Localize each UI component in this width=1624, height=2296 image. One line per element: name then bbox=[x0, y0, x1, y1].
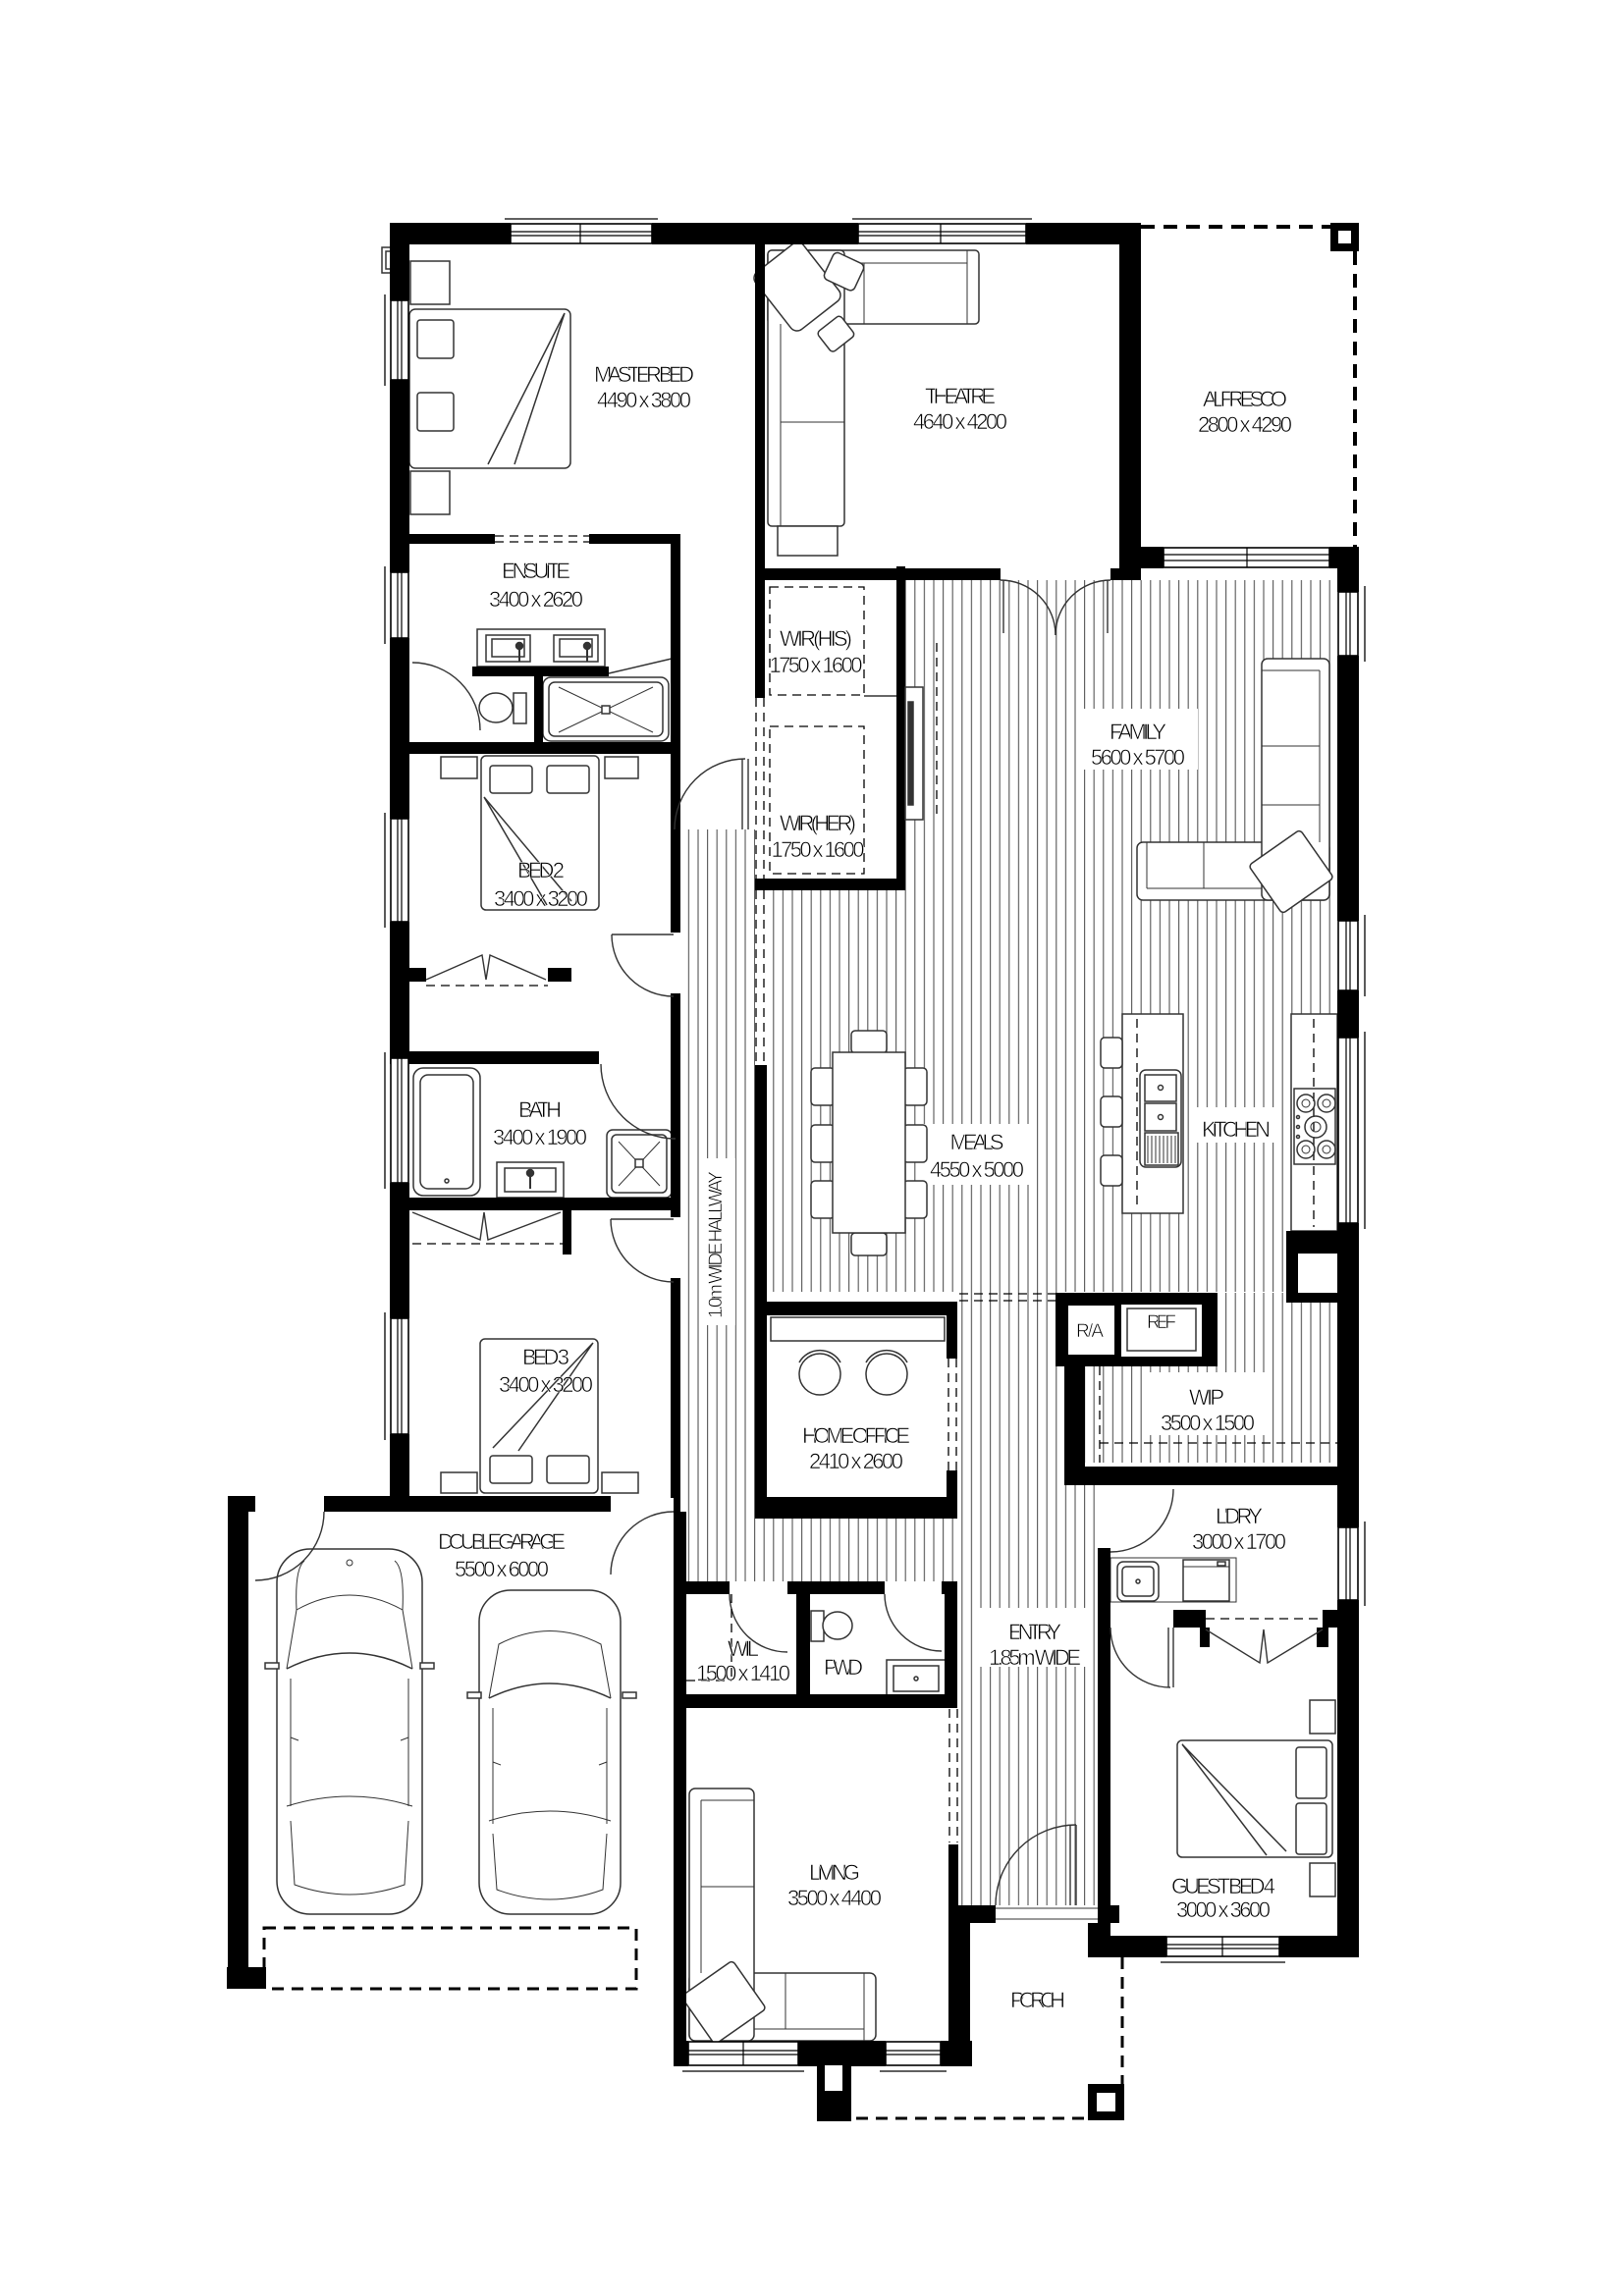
svg-text:BED 2: BED 2 bbox=[517, 858, 565, 882]
svg-text:PWD: PWD bbox=[824, 1655, 863, 1680]
svg-text:1500 x 1410: 1500 x 1410 bbox=[696, 1661, 790, 1685]
svg-text:2800 x 4290: 2800 x 4290 bbox=[1198, 412, 1292, 437]
svg-text:1750 x 1600: 1750 x 1600 bbox=[772, 837, 865, 862]
svg-text:REF: REF bbox=[1147, 1312, 1176, 1333]
svg-text:FAMILY: FAMILY bbox=[1110, 720, 1166, 744]
svg-text:3400 x 2620: 3400 x 2620 bbox=[489, 587, 583, 612]
svg-text:3500 x 1500: 3500 x 1500 bbox=[1161, 1411, 1255, 1435]
svg-text:HOME OFFICE: HOME OFFICE bbox=[802, 1423, 910, 1448]
svg-text:BATH: BATH bbox=[518, 1097, 562, 1122]
svg-text:GUEST BED 4: GUEST BED 4 bbox=[1171, 1874, 1275, 1898]
svg-text:L'DRY: L'DRY bbox=[1216, 1504, 1263, 1528]
svg-text:WIP: WIP bbox=[1189, 1385, 1224, 1410]
svg-text:4490 x 3800: 4490 x 3800 bbox=[597, 388, 691, 412]
svg-text:5600 x 5700: 5600 x 5700 bbox=[1091, 745, 1185, 770]
svg-text:WIR(HER): WIR(HER) bbox=[780, 811, 856, 835]
svg-text:3000 x 1700: 3000 x 1700 bbox=[1192, 1529, 1286, 1554]
svg-text:LIVING: LIVING bbox=[809, 1860, 860, 1885]
svg-text:1.0m WIDE HALLWAY: 1.0m WIDE HALLWAY bbox=[706, 1171, 727, 1318]
svg-text:MASTER BED: MASTER BED bbox=[594, 362, 694, 387]
svg-text:3500 x 4400: 3500 x 4400 bbox=[787, 1886, 882, 1910]
svg-text:KITCHEN: KITCHEN bbox=[1202, 1117, 1271, 1142]
svg-text:1.85m WIDE: 1.85m WIDE bbox=[989, 1645, 1081, 1670]
svg-text:DOUBLE GARAGE: DOUBLE GARAGE bbox=[438, 1529, 566, 1554]
svg-text:PORCH: PORCH bbox=[1010, 1988, 1065, 2012]
svg-text:ALFRESCO: ALFRESCO bbox=[1203, 387, 1287, 411]
svg-text:2410 x 2600: 2410 x 2600 bbox=[809, 1449, 903, 1473]
svg-text:ENSUITE: ENSUITE bbox=[502, 559, 570, 583]
svg-text:BED 3: BED 3 bbox=[522, 1345, 569, 1369]
svg-text:1750 x 1600: 1750 x 1600 bbox=[770, 653, 863, 677]
svg-text:MEALS: MEALS bbox=[950, 1130, 1004, 1154]
svg-text:ENTRY: ENTRY bbox=[1008, 1620, 1061, 1644]
svg-text:5500 x 6000: 5500 x 6000 bbox=[455, 1557, 549, 1581]
svg-text:WIR(HIS): WIR(HIS) bbox=[780, 626, 852, 651]
svg-text:3400 x 3200: 3400 x 3200 bbox=[499, 1372, 593, 1397]
svg-text:3000 x 3600: 3000 x 3600 bbox=[1176, 1897, 1271, 1922]
svg-text:THEATRE: THEATRE bbox=[925, 384, 996, 408]
svg-text:3400 x 1900: 3400 x 1900 bbox=[493, 1125, 587, 1149]
svg-text:4550 x 5000: 4550 x 5000 bbox=[930, 1157, 1024, 1182]
svg-text:WIL: WIL bbox=[728, 1636, 759, 1661]
svg-text:3400 x 3200: 3400 x 3200 bbox=[494, 886, 588, 911]
svg-text:4640 x 4200: 4640 x 4200 bbox=[913, 409, 1007, 434]
svg-text:R/A: R/A bbox=[1076, 1321, 1104, 1342]
